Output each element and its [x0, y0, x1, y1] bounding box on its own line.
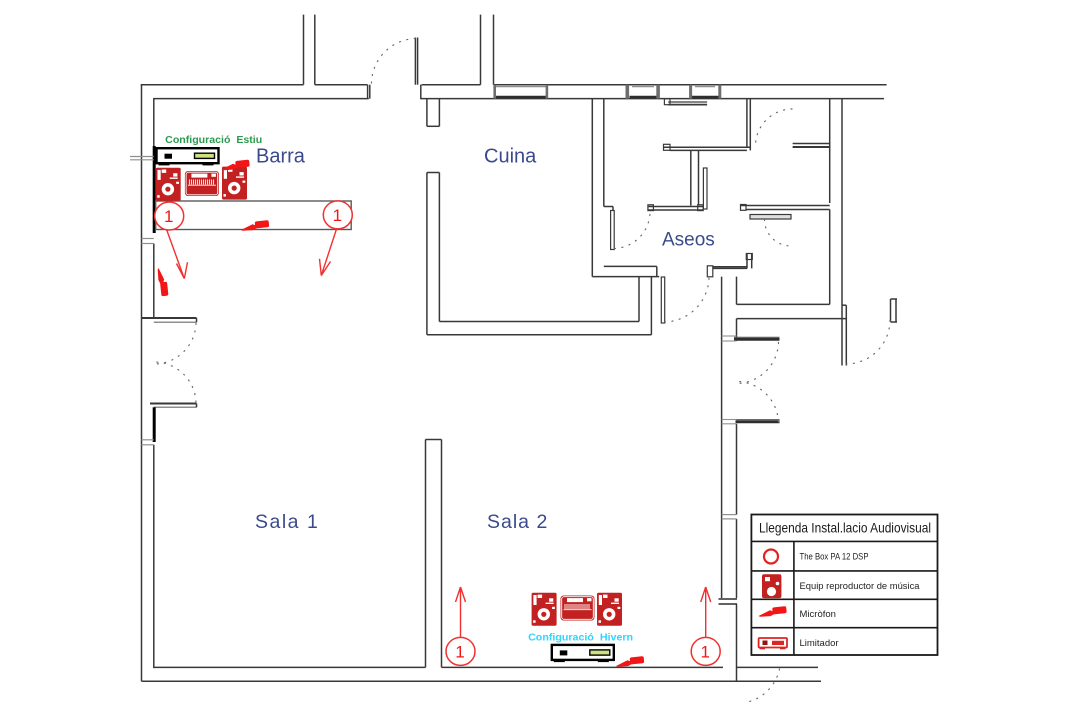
svg-text:Equip reproductor de música: Equip reproductor de música	[800, 581, 921, 592]
svg-text:Limitador: Limitador	[800, 638, 839, 649]
svg-text:Configuració Estiu: Configuració Estiu	[165, 135, 262, 146]
svg-text:Sala 2: Sala 2	[487, 511, 548, 533]
svg-text:The Box PA 12 DSP: The Box PA 12 DSP	[800, 552, 869, 562]
svg-text:Llegenda Instal.lacio Audiovis: Llegenda Instal.lacio Audiovisual	[759, 521, 931, 536]
svg-text:Sala 1: Sala 1	[255, 511, 319, 533]
svg-text:Barra: Barra	[256, 146, 306, 168]
svg-text:Micròfon: Micròfon	[800, 609, 836, 620]
svg-text:Configuració Hivern: Configuració Hivern	[528, 632, 633, 643]
svg-text:Cuina: Cuina	[484, 146, 537, 168]
svg-text:Aseos: Aseos	[662, 230, 715, 251]
